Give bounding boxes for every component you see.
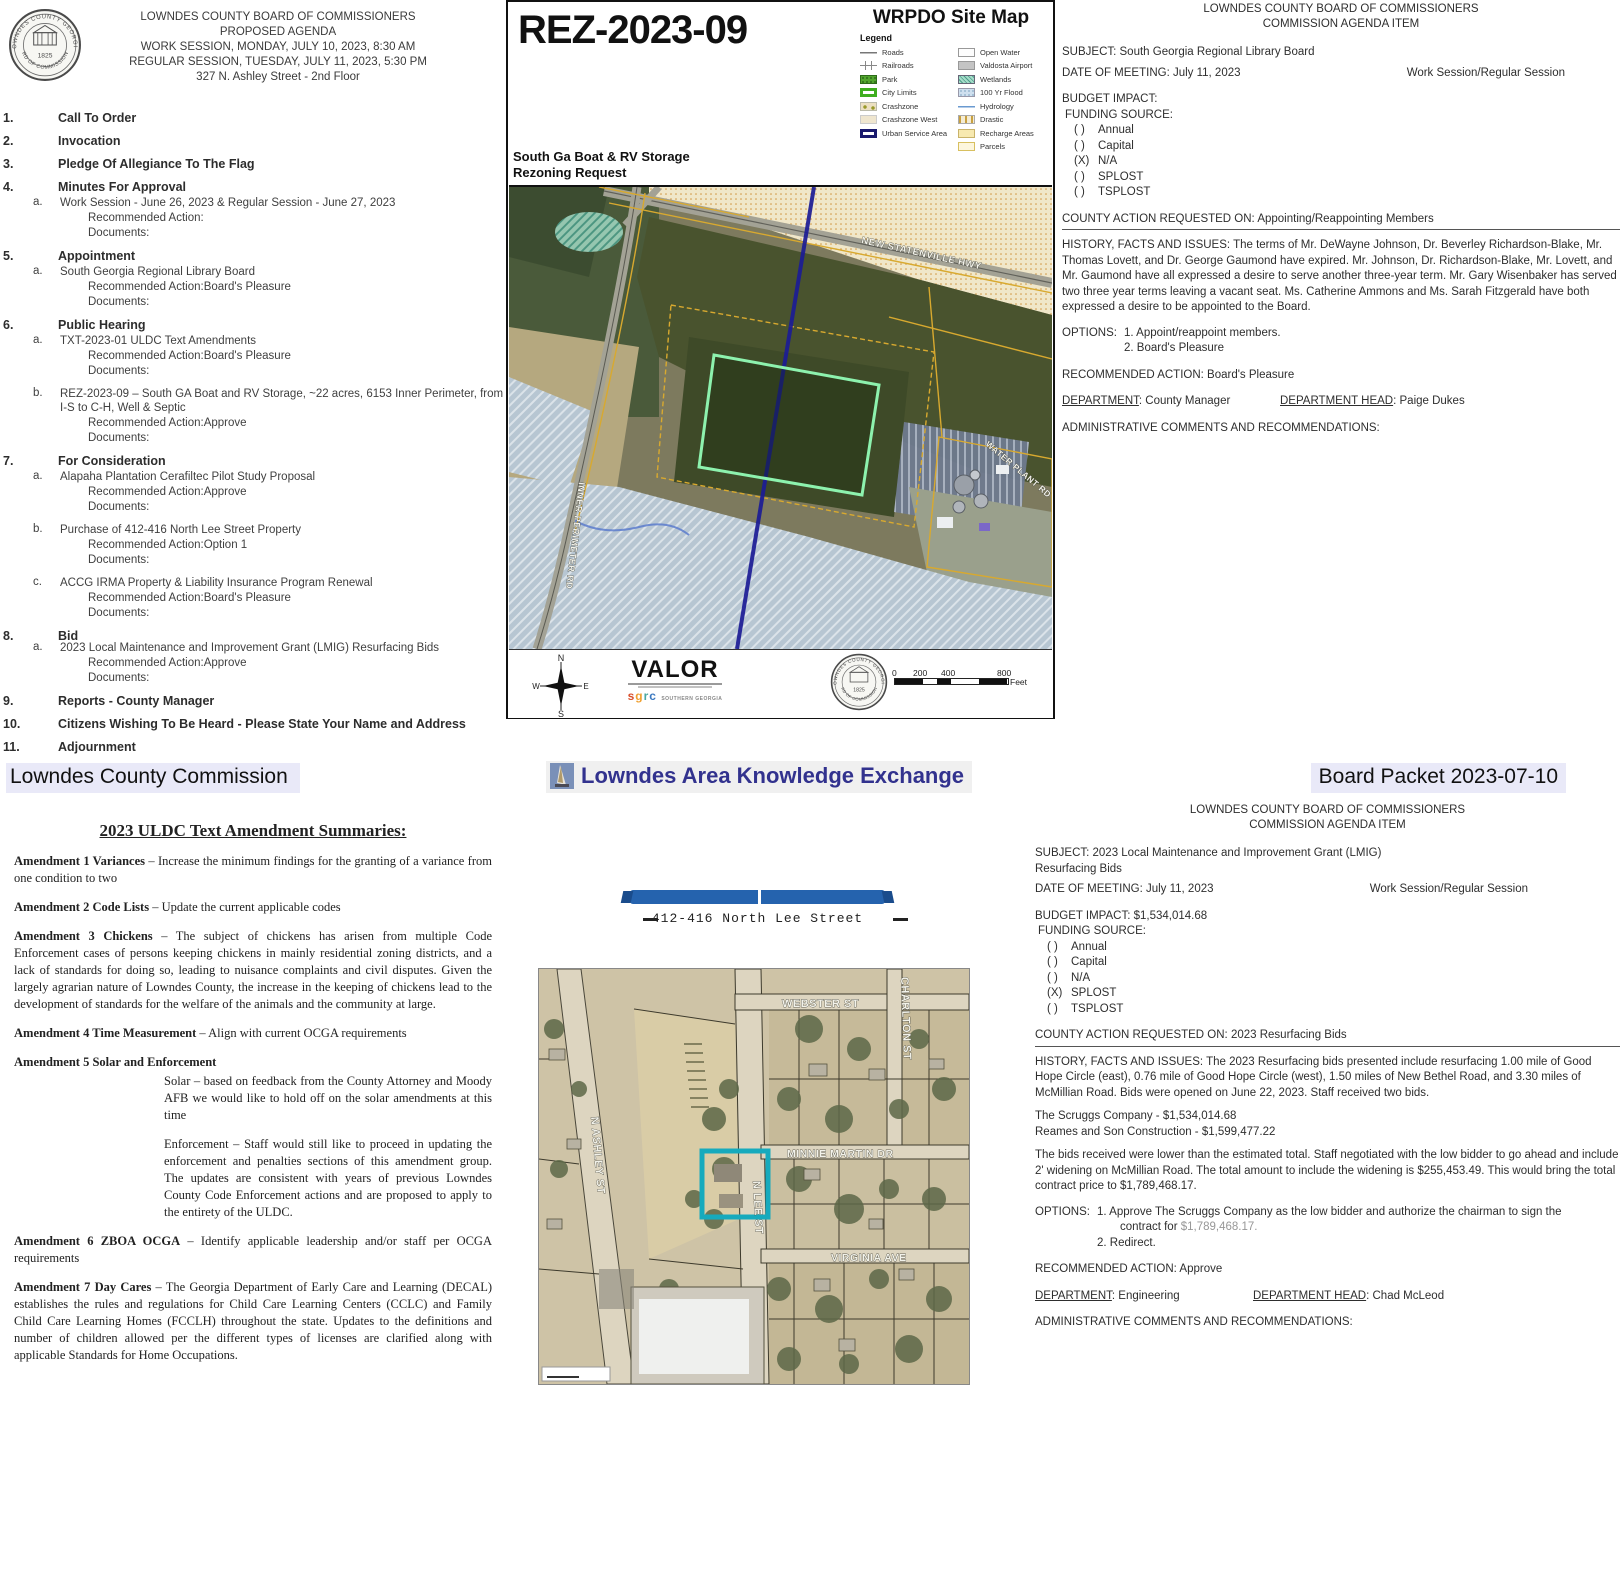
options-line2: 2. Board's Pleasure [1124, 341, 1620, 357]
map-subtitle-line2: Rezoning Request [513, 165, 690, 181]
amendment-2: Amendment 2 Code Lists – Update the curr… [14, 899, 492, 916]
map-footer: N E W S VALOR sgrc SOUTHERN GEORGIA LOWN… [508, 650, 1053, 718]
county-action-line: COUNTY ACTION REQUESTED ON: 2023 Resurfa… [1035, 1028, 1620, 1047]
bid-scruggs: The Scruggs Company - $1,534,014.68 [1035, 1109, 1620, 1125]
funding-option-na: ( )N/A [1035, 971, 1620, 987]
checkbox-mark: ( ) [1074, 185, 1098, 201]
agenda-item-2: 2.Invocation [0, 134, 506, 148]
recommended-action-value: Approve [204, 417, 247, 429]
checkbox-mark: (X) [1074, 154, 1098, 170]
options-label: OPTIONS: [1062, 326, 1124, 342]
department-row: DEPARTMENT: Engineering DEPARTMENT HEAD:… [1035, 1289, 1620, 1305]
compass-e: E [583, 682, 588, 691]
item-number: 5. [0, 249, 58, 263]
subitem-letter: a. [33, 334, 60, 378]
urban-service-area-swatch-icon [860, 129, 877, 138]
recommended-action-value: Approve [204, 486, 247, 498]
legend-item-crashzone: Crashzone [860, 101, 960, 111]
subject-line2: Resurfacing Bids [1035, 862, 1620, 878]
checkbox-mark: ( ) [1074, 123, 1098, 139]
funding-option-capital: ( )Capital [1062, 139, 1620, 155]
legend-item-recharge-areas: Recharge Areas [958, 128, 1058, 138]
legend-item-wetlands: Wetlands [958, 74, 1058, 84]
roads-swatch-icon [860, 48, 877, 57]
wetlands-swatch-icon [958, 75, 975, 84]
department-head-value: : Chad McLeod [1366, 1290, 1444, 1302]
options-line2: 2. Redirect. [1097, 1236, 1620, 1252]
recommended-action-label: Recommended Action: [88, 485, 204, 499]
drastic-swatch-icon [958, 115, 975, 124]
agenda-subitem-6b: b. REZ-2023-09 – South GA Boat and RV St… [33, 387, 506, 445]
item-number: 11. [0, 740, 58, 754]
crashzone-west-swatch-icon [860, 115, 877, 124]
address-dash-right [893, 918, 908, 921]
documents-label: Documents: [88, 553, 200, 567]
item-title: Public Hearing [58, 318, 146, 332]
options-line1-continued: contract for $1,789,468.17. [1120, 1220, 1620, 1236]
legend-item-100yr-flood: 100 Yr Flood [958, 88, 1058, 98]
recommended-action-label: Recommended Action: [88, 416, 204, 430]
budget-impact: BUDGET IMPACT: $1,534,014.68 [1035, 909, 1620, 925]
subitem-text: Work Session - June 26, 2023 & Regular S… [60, 196, 506, 210]
amendment-1: Amendment 1 Variances – Increase the min… [14, 853, 492, 887]
agenda-item-4: 4.Minutes For Approval [0, 180, 506, 194]
subitem-text: Alapaha Plantation Cerafiltec Pilot Stud… [60, 470, 506, 484]
checkbox-mark: ( ) [1047, 971, 1071, 987]
subitem-letter: a. [33, 265, 60, 309]
subitem-text: 2023 Local Maintenance and Improvement G… [60, 641, 506, 655]
scale-tick-0: 0 [892, 668, 897, 678]
item-number: 3. [0, 157, 58, 171]
item-title: Call To Order [58, 111, 136, 125]
recommended-action-label: Recommended Action: [88, 211, 204, 225]
agenda-subitem-7b: b. Purchase of 412-416 North Lee Street … [33, 523, 506, 567]
legend-item-railroads: Railroads [860, 61, 960, 71]
item-title: Adjournment [58, 740, 136, 754]
department-label: DEPARTMENT [1062, 395, 1139, 407]
doc-header-line2: COMMISSION AGENDA ITEM [1035, 818, 1620, 833]
sgrc-wordmark: sgrc SOUTHERN GEORGIA [620, 690, 730, 705]
subitem-letter: a. [33, 470, 60, 514]
recommended-action-label: Recommended Action: [88, 591, 204, 605]
amendment-3: Amendment 3 Chickens – The subject of ch… [14, 928, 492, 1013]
legend-item-drastic: Drastic [958, 115, 1058, 125]
amendment-4: Amendment 4 Time Measurement – Align wit… [14, 1025, 492, 1042]
checkbox-mark: ( ) [1047, 1002, 1071, 1018]
county-action-line: COUNTY ACTION REQUESTED ON: Appointing/R… [1062, 212, 1620, 231]
flood-swatch-icon [958, 88, 975, 97]
wrpdo-site-map-document: REZ-2023-09 WRPDO Site Map Legend Roads … [506, 0, 1055, 719]
legend-item-urban-service-area: Urban Service Area [860, 128, 960, 138]
funding-option-capital: ( )Capital [1035, 955, 1620, 971]
checkbox-mark: (X) [1047, 986, 1071, 1002]
airport-swatch-icon [958, 61, 975, 70]
session-type: Work Session/Regular Session [1407, 66, 1565, 82]
agenda-item-11: 11.Adjournment [0, 740, 506, 754]
recommended-action-label: Recommended Action: [88, 349, 204, 363]
documents-label: Documents: [88, 500, 200, 514]
city-limits-swatch-icon [860, 88, 877, 97]
agenda-item-7: 7.For Consideration [0, 454, 506, 468]
agenda-header-line5: 327 N. Ashley Street - 2nd Floor [88, 70, 468, 85]
date-row: DATE OF MEETING: July 11, 2023 Work Sess… [1035, 882, 1620, 898]
session-type: Work Session/Regular Session [1370, 882, 1528, 898]
legend-item-open-water: Open Water [958, 47, 1058, 57]
history-paragraph: HISTORY, FACTS AND ISSUES: The 2023 Resu… [1035, 1055, 1620, 1102]
item-number: 6. [0, 318, 58, 332]
compass-s: S [558, 709, 564, 718]
agenda-item-1: 1.Call To Order [0, 111, 506, 125]
sgrc-org-name: SOUTHERN GEORGIA [661, 696, 722, 702]
budget-impact: BUDGET IMPACT: [1062, 92, 1620, 108]
funding-option-tsplost: ( )TSPLOST [1035, 1002, 1620, 1018]
address-highlight-bar [630, 890, 885, 904]
uldc-title: 2023 ULDC Text Amendment Summaries: [14, 822, 492, 839]
department-head-value: : Paige Dukes [1393, 395, 1465, 407]
subitem-letter: a. [33, 196, 60, 240]
date-row: DATE OF MEETING: July 11, 2023 Work Sess… [1062, 66, 1620, 82]
funding-option-tsplost: ( )TSPLOST [1062, 185, 1620, 201]
funding-source-label: FUNDING SOURCE: [1035, 924, 1620, 940]
department-row: DEPARTMENT: County Manager DEPARTMENT HE… [1062, 394, 1620, 410]
funding-option-splost: (X)SPLOST [1035, 986, 1620, 1002]
documents-label: Documents: [88, 226, 200, 240]
virginia-ave-label: VIRGINIA AVE [831, 1252, 907, 1264]
scale-tick-200: 200 [913, 668, 927, 678]
valor-tagline-bar [628, 683, 722, 685]
legend-item-city-limits: City Limits [860, 88, 960, 98]
doc-header-line2: COMMISSION AGENDA ITEM [1062, 17, 1620, 32]
map-subtitle-line1: South Ga Boat & RV Storage [513, 149, 690, 165]
legend-item-crashzone-west: Crashzone West [860, 115, 960, 125]
options-label: OPTIONS: [1035, 1205, 1097, 1221]
site-title: Lowndes County Commission [6, 763, 300, 793]
county-seal-icon: LOWNDES COUNTY GEORGIA BOARD OF COMMISSI… [8, 8, 82, 82]
rezoning-aerial-map: NEW STATENVILLE HWY INNER PERIMETER RD W… [509, 185, 1052, 650]
uldc-amendment-summaries-document: 2023 ULDC Text Amendment Summaries: Amen… [14, 822, 492, 1376]
amendment-5-solar: Solar – based on feedback from the Count… [164, 1073, 492, 1124]
amendment-7: Amendment 7 Day Cares – The Georgia Depa… [14, 1279, 492, 1364]
compass-rose-icon: N E W S [530, 652, 592, 718]
lmig-resurfacing-agenda-item-document: LOWNDES COUNTY BOARD OF COMMISSIONERS CO… [1035, 803, 1620, 1331]
funding-source-label: FUNDING SOURCE: [1062, 108, 1620, 124]
amendment-6: Amendment 6 ZBOA OCGA – Identify applica… [14, 1233, 492, 1267]
item-title: Appointment [58, 249, 135, 263]
county-seal-small-icon: LOWNDES COUNTY GEORGIA BOARD OF COMMISSI… [830, 653, 888, 711]
documents-label: Documents: [88, 431, 200, 445]
property-address: 412-416 North Lee Street [630, 911, 885, 926]
agenda-subitem-7c: c. ACCG IRMA Property & Liability Insura… [33, 576, 506, 620]
agenda-header-line1: LOWNDES COUNTY BOARD OF COMMISSIONERS [88, 10, 468, 25]
map-subtitle: South Ga Boat & RV Storage Rezoning Requ… [513, 149, 690, 181]
railroads-swatch-icon [860, 61, 877, 70]
scale-tick-400: 400 [941, 668, 955, 678]
subitem-text: ACCG IRMA Property & Liability Insurance… [60, 576, 506, 590]
item-title: Reports - County Manager [58, 694, 214, 708]
valor-tagline-bar2 [638, 686, 712, 688]
recommended-action-value: Board's Pleasure [204, 592, 291, 604]
recommended-action-value: Option 1 [204, 539, 247, 551]
department-value: : Engineering [1112, 1290, 1180, 1302]
documents-label: Documents: [88, 364, 200, 378]
checkbox-mark: ( ) [1047, 955, 1071, 971]
department-head-label: DEPARTMENT HEAD [1280, 395, 1393, 407]
legend-item-hydrology: Hydrology [958, 101, 1058, 111]
recommended-action-value: Approve [204, 657, 247, 669]
seal-year: 1825 [38, 52, 53, 59]
library-board-agenda-item-document: LOWNDES COUNTY BOARD OF COMMISSIONERS CO… [1062, 2, 1620, 436]
negotiation-paragraph: The bids received were lower than the es… [1035, 1148, 1620, 1195]
agenda-header-line3: WORK SESSION, MONDAY, JULY 10, 2023, 8:3… [88, 40, 468, 55]
open-water-swatch-icon [958, 48, 975, 57]
recommended-action-value: Board's Pleasure [204, 350, 291, 362]
address-dash-left [643, 918, 658, 921]
item-title: Invocation [58, 134, 121, 148]
subject-line1: SUBJECT: 2023 Local Maintenance and Impr… [1035, 846, 1620, 862]
subject-line: SUBJECT: South Georgia Regional Library … [1062, 45, 1620, 61]
funding-option-annual: ( )Annual [1035, 940, 1620, 956]
agenda-subitem-5a: a. South Georgia Regional Library Board … [33, 265, 506, 309]
checkbox-mark: ( ) [1047, 940, 1071, 956]
item-number: 2. [0, 134, 58, 148]
legend-item-roads: Roads [860, 47, 960, 57]
recommended-action-line: RECOMMENDED ACTION: Board's Pleasure [1062, 368, 1620, 384]
item-number: 10. [0, 717, 58, 731]
property-aerial-map: WEBSTER ST CHARLTON ST N ASHLEY ST N LEE… [538, 968, 970, 1385]
funding-option-splost: ( )SPLOST [1062, 170, 1620, 186]
agenda-item-10: 10.Citizens Wishing To Be Heard - Please… [0, 717, 506, 731]
subitem-text: Purchase of 412-416 North Lee Street Pro… [60, 523, 506, 537]
department-head-label: DEPARTMENT HEAD [1253, 1290, 1366, 1302]
recommended-action-label: Recommended Action: [88, 538, 204, 552]
subitem-text: TXT-2023-01 ULDC Text Amendments [60, 334, 506, 348]
subitem-letter: b. [33, 387, 60, 445]
item-number: 4. [0, 180, 58, 194]
documents-label: Documents: [88, 606, 200, 620]
valor-logo: VALOR sgrc SOUTHERN GEORGIA [620, 658, 730, 705]
item-title: For Consideration [58, 454, 166, 468]
item-number: 9. [0, 694, 58, 708]
map-scale-bar: 0 200 400 800 Feet [894, 668, 1024, 685]
contract-amount: $1,789,468.17. [1181, 1221, 1258, 1233]
subitem-letter: a. [33, 641, 60, 685]
history-paragraph: HISTORY, FACTS AND ISSUES: The terms of … [1062, 238, 1620, 316]
parcels-swatch-icon [958, 142, 975, 151]
checkbox-mark: ( ) [1074, 170, 1098, 186]
minnie-martin-dr-label: MINNIE MARTIN DR [787, 1148, 894, 1160]
item-title: Citizens Wishing To Be Heard - Please St… [58, 717, 466, 731]
bid-reames: Reames and Son Construction - $1,599,477… [1035, 1125, 1620, 1141]
department-value: : County Manager [1139, 395, 1230, 407]
lake-logo-icon [550, 763, 574, 789]
agenda-subitem-6a: a. TXT-2023-01 ULDC Text Amendments Reco… [33, 334, 506, 378]
legend-item-park: Park [860, 74, 960, 84]
recommended-action-line: RECOMMENDED ACTION: Approve [1035, 1262, 1620, 1278]
doc-header-line1: LOWNDES COUNTY BOARD OF COMMISSIONERS [1035, 803, 1620, 818]
item-number: 1. [0, 111, 58, 125]
agenda-item-9: 9.Reports - County Manager [0, 694, 506, 708]
compass-w: W [532, 682, 540, 691]
item-title: Pledge Of Allegiance To The Flag [58, 157, 255, 171]
amendment-5-enforcement: Enforcement – Staff would still like to … [164, 1136, 492, 1221]
board-packet-label: Board Packet 2023-07-10 [1311, 763, 1566, 793]
agenda-subitem-8a: a. 2023 Local Maintenance and Improvemen… [33, 641, 506, 685]
legend-column-right: Open Water Valdosta Airport Wetlands 100… [958, 47, 1058, 155]
subitem-text: REZ-2023-09 – South GA Boat and RV Stora… [60, 387, 506, 415]
recommended-action-label: Recommended Action: [88, 280, 204, 294]
agenda-item-list: 1.Call To Order 2.Invocation 3.Pledge Of… [0, 111, 506, 754]
item-title: Minutes For Approval [58, 180, 186, 194]
documents-label: Documents: [88, 295, 200, 309]
compass-n: N [558, 653, 565, 663]
lake-title: Lowndes Area Knowledge Exchange [581, 763, 964, 789]
lake-banner: Lowndes Area Knowledge Exchange [546, 761, 972, 793]
agenda-header: LOWNDES COUNTY BOARD OF COMMISSIONERS PR… [88, 10, 468, 85]
agenda-subitem-7a: a. Alapaha Plantation Cerafiltec Pilot S… [33, 470, 506, 514]
amendment-5-heading: Amendment 5 Solar and Enforcement [14, 1054, 492, 1071]
webster-st-label: WEBSTER ST [782, 998, 859, 1010]
department-label: DEPARTMENT [1035, 1290, 1112, 1302]
funding-option-annual: ( )Annual [1062, 123, 1620, 139]
subitem-text: South Georgia Regional Library Board [60, 265, 506, 279]
park-swatch-icon [860, 75, 877, 84]
agenda-header-line4: REGULAR SESSION, TUESDAY, JULY 11, 2023,… [88, 55, 468, 70]
options-line1: OPTIONS:1. Appoint/reappoint members. [1062, 326, 1620, 342]
valor-wordmark: VALOR [620, 658, 730, 682]
map-title: WRPDO Site Map [851, 7, 1051, 29]
recharge-swatch-icon [958, 129, 975, 138]
seal-year: 1825 [853, 688, 865, 694]
hydrology-swatch-icon [958, 102, 975, 111]
options-line1: OPTIONS:1. Approve The Scruggs Company a… [1035, 1205, 1620, 1221]
agenda-item-3: 3.Pledge Of Allegiance To The Flag [0, 157, 506, 171]
recommended-action-label: Recommended Action: [88, 656, 204, 670]
funding-option-na: (X)N/A [1062, 154, 1620, 170]
agenda-item-5: 5.Appointment [0, 249, 506, 263]
scale-bar-segments [894, 678, 1009, 685]
legend-item-parcels: Parcels [958, 142, 1058, 152]
bid-list: The Scruggs Company - $1,534,014.68 Ream… [1035, 1109, 1620, 1140]
agenda-header-line2: PROPOSED AGENDA [88, 25, 468, 40]
legend-item-valdosta-airport: Valdosta Airport [958, 61, 1058, 71]
item-number: 7. [0, 454, 58, 468]
doc-header-line1: LOWNDES COUNTY BOARD OF COMMISSIONERS [1062, 2, 1620, 17]
proposed-agenda-document: LOWNDES COUNTY GEORGIA BOARD OF COMMISSI… [0, 0, 506, 763]
admin-comments-line: ADMINISTRATIVE COMMENTS AND RECOMMENDATI… [1035, 1315, 1620, 1331]
agenda-subitem-4a: a. Work Session - June 26, 2023 & Regula… [33, 196, 506, 240]
scale-unit: Feet [1010, 677, 1027, 687]
meeting-date: DATE OF MEETING: July 11, 2023 [1035, 882, 1214, 898]
legend-title: Legend [860, 33, 892, 43]
subitem-letter: b. [33, 523, 60, 567]
documents-label: Documents: [88, 671, 200, 685]
crashzone-swatch-icon [860, 102, 877, 111]
admin-comments-line: ADMINISTRATIVE COMMENTS AND RECOMMENDATI… [1062, 421, 1620, 437]
legend-column-left: Roads Railroads Park City Limits Crashzo… [860, 47, 960, 142]
rez-case-number: REZ-2023-09 [518, 8, 747, 53]
recommended-action-value: Board's Pleasure [204, 281, 291, 293]
agenda-item-6: 6.Public Hearing [0, 318, 506, 332]
checkbox-mark: ( ) [1074, 139, 1098, 155]
meeting-date: DATE OF MEETING: July 11, 2023 [1062, 66, 1241, 82]
north-lee-street-map-document: 412-416 North Lee Street [535, 845, 975, 1385]
subitem-letter: c. [33, 576, 60, 620]
